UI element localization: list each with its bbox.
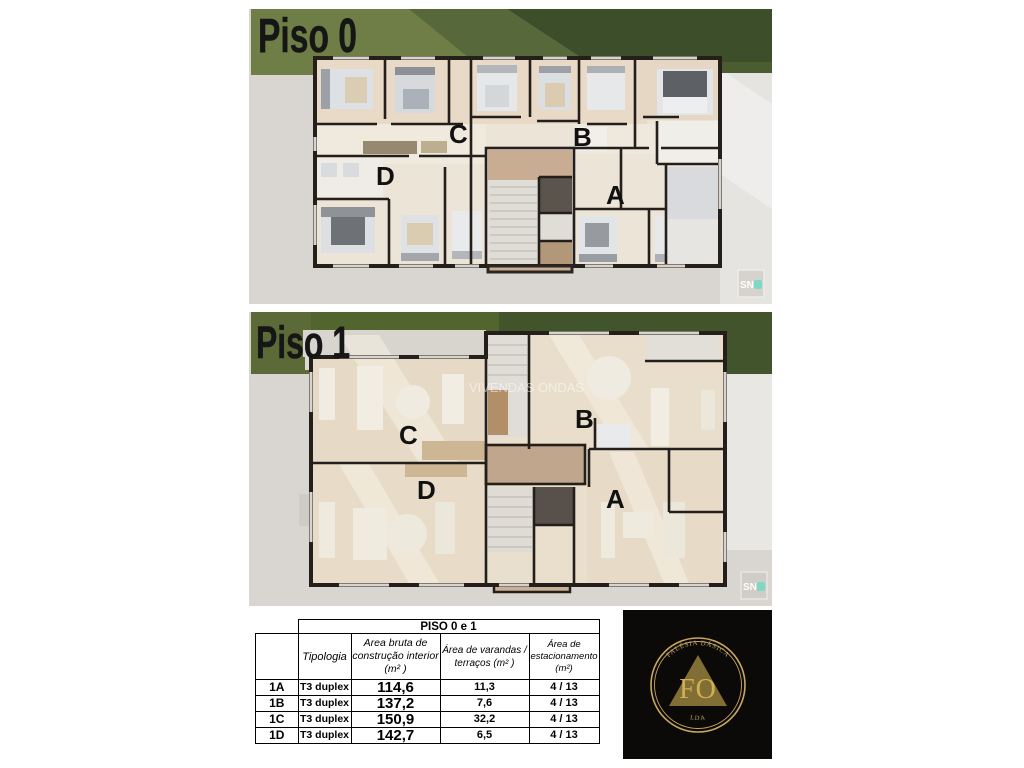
svg-text:D: D bbox=[417, 475, 436, 505]
svg-text:Piso 0: Piso 0 bbox=[258, 10, 357, 63]
svg-text:D: D bbox=[376, 161, 395, 191]
svg-text:LDA: LDA bbox=[690, 714, 707, 722]
svg-text:B: B bbox=[575, 404, 594, 434]
svg-text:A: A bbox=[606, 180, 625, 210]
svg-text:SN: SN bbox=[743, 582, 757, 593]
svg-text:A: A bbox=[606, 484, 625, 514]
svg-text:Piso 1: Piso 1 bbox=[256, 317, 350, 368]
svg-text:FO: FO bbox=[679, 674, 717, 705]
svg-text:VIVENDAS ONDAS: VIVENDAS ONDAS bbox=[469, 380, 584, 395]
svg-text:SN: SN bbox=[740, 280, 754, 291]
svg-text:C: C bbox=[399, 420, 418, 450]
svg-text:B: B bbox=[573, 122, 592, 152]
svg-text:C: C bbox=[449, 119, 468, 149]
